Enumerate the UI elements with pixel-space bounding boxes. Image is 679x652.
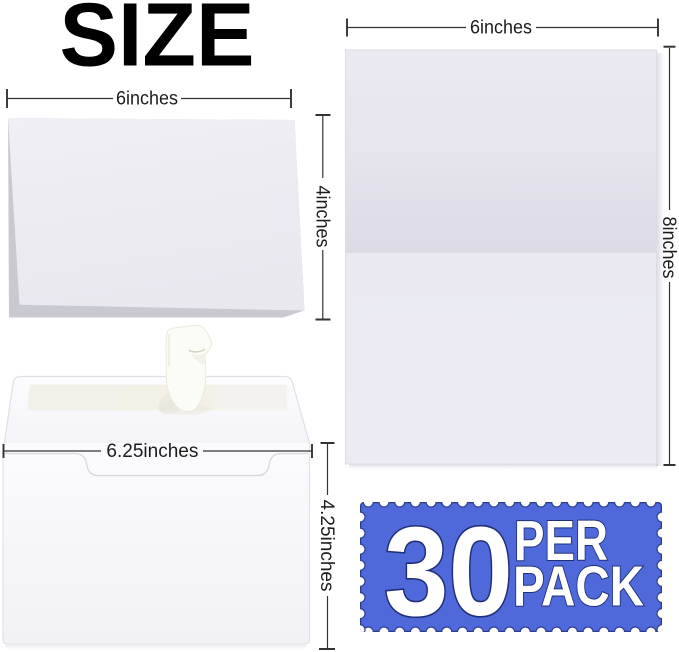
svg-text:PACK: PACK: [513, 555, 644, 618]
svg-text:4.25inches: 4.25inches: [316, 500, 337, 592]
svg-text:6.25inches: 6.25inches: [106, 441, 198, 462]
svg-text:6inches: 6inches: [116, 89, 178, 110]
svg-text:30: 30: [384, 501, 513, 642]
svg-text:6inches: 6inches: [470, 18, 532, 39]
svg-text:SIZE: SIZE: [60, 0, 255, 86]
svg-text:8inches: 8inches: [658, 217, 679, 279]
svg-text:4inches: 4inches: [311, 186, 332, 248]
